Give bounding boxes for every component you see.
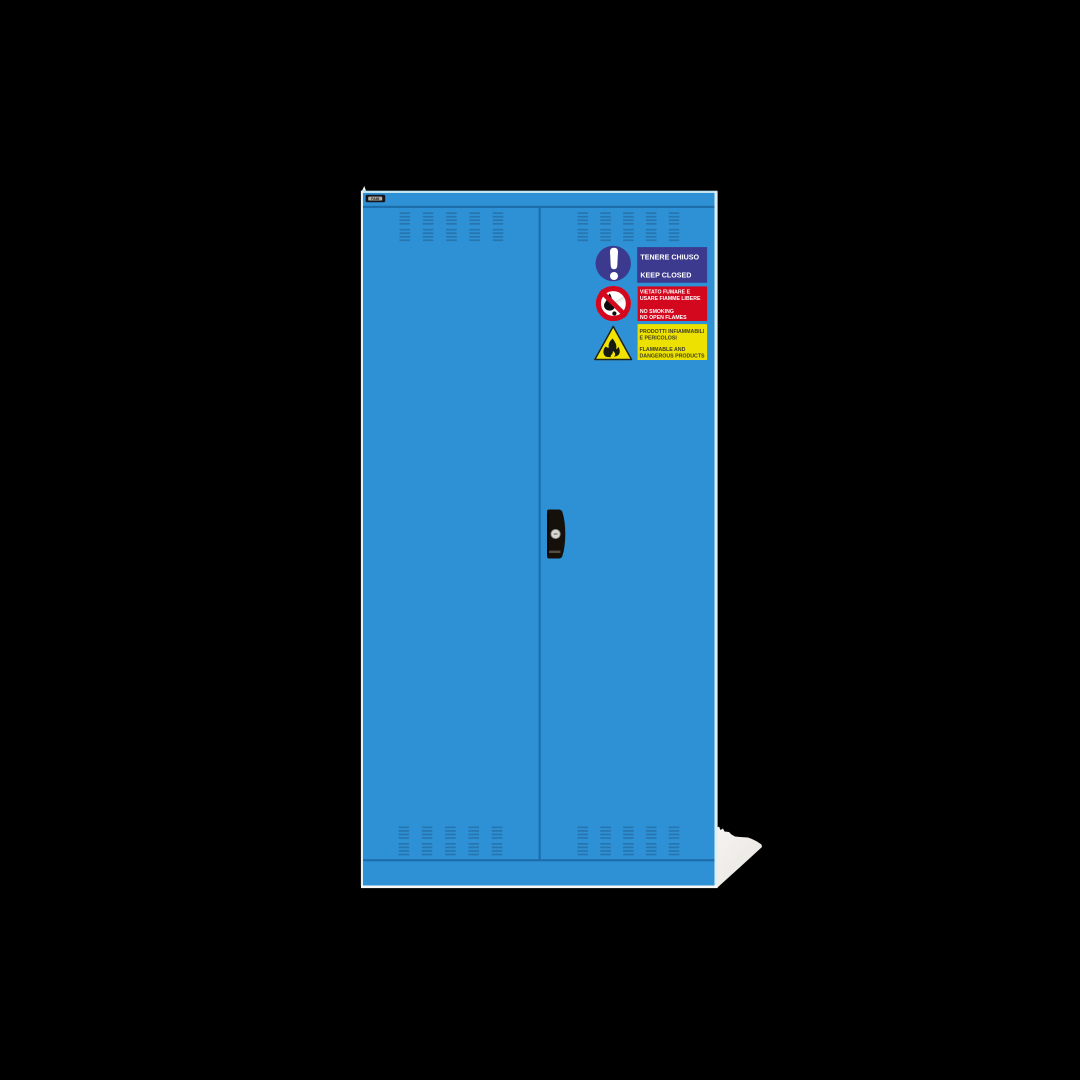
svg-text:DANGEROUS PRODUCTS: DANGEROUS PRODUCTS <box>640 354 706 360</box>
svg-text:PRODOTTI INFIAMMABILI: PRODOTTI INFIAMMABILI <box>640 329 705 335</box>
svg-text:TENERE CHIUSO: TENERE CHIUSO <box>640 254 699 262</box>
svg-text:NO SMOKING: NO SMOKING <box>640 309 674 315</box>
svg-text:FAMI: FAMI <box>371 197 379 201</box>
svg-text:USARE FIAMME LIBERE: USARE FIAMME LIBERE <box>640 296 701 302</box>
svg-text:E PERICOLOSI: E PERICOLOSI <box>640 335 678 341</box>
svg-text:NO OPEN FLAMES: NO OPEN FLAMES <box>640 315 687 321</box>
svg-text:KEEP CLOSED: KEEP CLOSED <box>640 272 691 280</box>
svg-text:FLAMMABLE AND: FLAMMABLE AND <box>640 347 686 353</box>
svg-text:VIETATO FUMARE E: VIETATO FUMARE E <box>640 290 691 296</box>
